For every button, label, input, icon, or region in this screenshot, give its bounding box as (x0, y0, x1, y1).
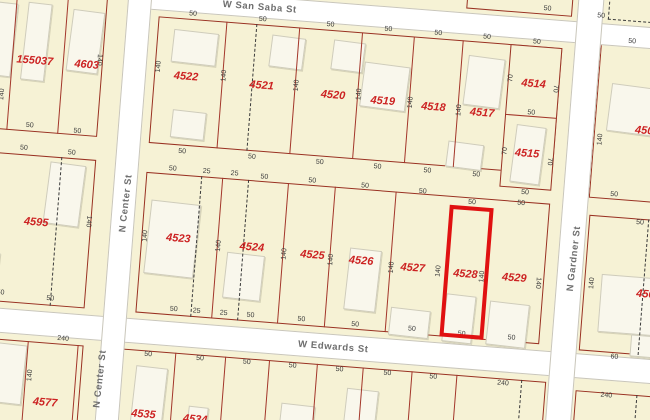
parcel-label-4603[interactable]: 4603 (74, 58, 99, 72)
dimension-label: 50 (169, 165, 177, 173)
dimension-label: 50 (434, 30, 442, 38)
dimension-label: 140 (596, 133, 604, 145)
parcel-label-4577[interactable]: 4577 (32, 396, 57, 410)
dimension-label: 50 (178, 148, 186, 156)
dimension-label: 50 (68, 149, 76, 157)
dimension-label: 70 (507, 74, 515, 82)
dimension-label: 240 (497, 380, 509, 388)
dimension-label: 50 (408, 325, 416, 333)
dimension-label: 50 (20, 144, 28, 152)
dimension-label: 50 (483, 33, 491, 41)
dimension-label: 50 (472, 171, 480, 179)
dimension-label: 50 (189, 10, 197, 18)
parcel-label-4535[interactable]: 4535 (131, 407, 156, 420)
parcel-label-4517[interactable]: 4517 (469, 106, 494, 120)
dimension-label: 50 (533, 38, 541, 46)
dimension-label: 50 (316, 159, 324, 167)
dimension-label: 50 (26, 122, 34, 130)
dimension-label: 140 (327, 254, 335, 266)
dimension-label: 50 (260, 173, 268, 181)
dimension-label: 50 (170, 306, 178, 314)
parcel-label-456[interactable]: 456 (636, 288, 650, 301)
dimension-label: 25 (202, 168, 210, 176)
dimension-label: 240 (600, 392, 612, 400)
building-footprint (485, 301, 530, 349)
dimension-label: 140 (407, 96, 415, 108)
dimension-label: 50 (351, 321, 359, 329)
dimension-label: 50 (429, 373, 437, 381)
dimension-label: 50 (308, 177, 316, 185)
dimension-label: 50 (507, 334, 515, 342)
parcel-label-4521[interactable]: 4521 (249, 79, 274, 93)
dimension-label: 50 (597, 12, 605, 20)
dimension-label: 50 (636, 219, 644, 227)
dimension-label: 50 (289, 362, 297, 370)
dimension-label: 140 (0, 88, 6, 100)
dimension-label: 50 (326, 21, 334, 29)
dimension-label: 70 (501, 147, 509, 155)
dimension-label: 50 (384, 26, 392, 34)
building-footprint (170, 109, 207, 141)
parcel-label-4527[interactable]: 4527 (400, 261, 425, 275)
building-footprint (222, 252, 265, 302)
dimension-label: 50 (628, 38, 636, 46)
dimension-label: 50 (0, 289, 5, 297)
dimension-label: 140 (26, 369, 34, 381)
dimension-label: 50 (423, 167, 431, 175)
parcel-label-4526[interactable]: 4526 (348, 254, 373, 268)
dimension-label: 140 (220, 70, 228, 82)
dimension-label: 140 (588, 277, 596, 289)
dimension-label: 140 (435, 265, 443, 277)
dimension-label: 140 (534, 277, 542, 289)
dimension-label: 140 (355, 88, 363, 100)
building-footprint (277, 403, 316, 420)
building-footprint (268, 34, 306, 70)
parcel-label-4523[interactable]: 4523 (166, 232, 191, 246)
dimension-label: 50 (361, 182, 369, 190)
parcel-label-4520[interactable]: 4520 (320, 88, 345, 102)
dimension-label: 50 (248, 153, 256, 161)
building-footprint (171, 29, 219, 67)
dimension-label: 50 (527, 109, 535, 117)
dimension-label: 140 (388, 261, 396, 273)
dimension-label: 50 (196, 355, 204, 363)
dimension-label: 50 (419, 188, 427, 196)
dimension-label: 50 (335, 366, 343, 374)
dimension-label: 140 (455, 104, 463, 116)
parcel-label-4519[interactable]: 4519 (370, 94, 395, 108)
dimension-label: 140 (141, 230, 149, 242)
dimension-label: 50 (373, 163, 381, 171)
dimension-label: 25 (230, 170, 238, 178)
dimension-label: 70 (551, 85, 559, 93)
dimension-label: 140 (215, 240, 223, 252)
dimension-label: 25 (192, 307, 200, 315)
dimension-label: 50 (46, 295, 54, 303)
dimension-label: 140 (155, 60, 163, 72)
dimension-label: 25 (219, 310, 227, 318)
parcel-label-4518[interactable]: 4518 (421, 100, 446, 114)
parcel-label-4529[interactable]: 4529 (502, 271, 527, 285)
dimension-label: 50 (144, 351, 152, 359)
dimension-label: 50 (543, 5, 551, 13)
parcel-label-4522[interactable]: 4522 (173, 70, 198, 84)
dimension-label: 140 (293, 79, 301, 91)
dimension-label: 50 (246, 312, 254, 320)
dimension-label: 50 (468, 199, 476, 207)
dimension-label: 50 (517, 200, 525, 208)
dimension-label: 50 (521, 189, 529, 197)
dimension-label: 50 (259, 16, 267, 24)
building-footprint (388, 307, 431, 339)
dimension-label: 140 (84, 215, 92, 227)
dimension-label: 50 (297, 316, 305, 324)
parcel-label-4525[interactable]: 4525 (300, 248, 325, 262)
parcel-label-4528[interactable]: 4528 (453, 267, 478, 281)
dimension-label: 60 (610, 353, 618, 361)
dimension-label: 50 (243, 359, 251, 367)
dimension-label: 140 (280, 248, 288, 260)
dimension-label: 50 (73, 128, 81, 136)
dimension-label: 70 (546, 157, 554, 165)
parcel-label-4515[interactable]: 4515 (514, 147, 539, 161)
building-footprint (462, 55, 505, 109)
parcel-label-4595[interactable]: 4595 (23, 215, 48, 229)
parcel-label-4534[interactable]: 4534 (182, 413, 207, 420)
map-canvas[interactable]: W San Saba StW Edwards StN Center StN Ce… (0, 0, 650, 420)
dimension-label: 50 (383, 370, 391, 378)
parcel-label-4514[interactable]: 4514 (521, 77, 546, 91)
parcel-label-4501[interactable]: 4501 (635, 124, 650, 138)
parcel-label-4524[interactable]: 4524 (239, 240, 264, 254)
dimension-label: 240 (57, 335, 69, 343)
dimension-label: 50 (610, 191, 618, 199)
building-footprint (445, 141, 484, 171)
map-viewport: W San Saba StW Edwards StN Center StN Ce… (0, 0, 650, 420)
